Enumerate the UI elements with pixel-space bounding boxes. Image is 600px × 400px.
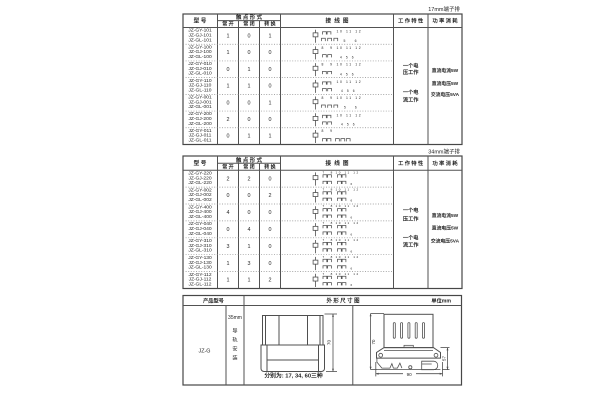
svg-text:1: 1 — [248, 67, 251, 73]
svg-text:JZ-GL-101: JZ-GL-101 — [188, 37, 212, 43]
svg-text:6: 6 — [351, 199, 354, 203]
svg-text:功 率 消 耗: 功 率 消 耗 — [432, 159, 458, 167]
svg-text:0: 0 — [248, 100, 251, 106]
svg-text:3: 3 — [248, 261, 251, 267]
svg-text:5 6: 5 6 — [344, 39, 359, 43]
svg-text:6: 6 — [351, 216, 354, 220]
svg-text:10 11 12: 10 11 12 — [337, 113, 363, 117]
svg-text:单位mm: 单位mm — [431, 297, 451, 305]
svg-text:4: 4 — [248, 227, 251, 233]
svg-text:1: 1 — [227, 33, 230, 39]
svg-text:一个电: 一个电 — [403, 206, 419, 214]
svg-text:JZ-GL-200: JZ-GL-200 — [188, 121, 212, 127]
svg-text:JZ-GL-011: JZ-GL-011 — [188, 138, 211, 144]
svg-text:35mm: 35mm — [228, 315, 242, 321]
svg-text:10 11 12: 10 11 12 — [337, 96, 363, 100]
svg-text:0: 0 — [269, 227, 272, 233]
svg-text:0: 0 — [269, 84, 272, 90]
svg-text:4 5 6: 4 5 6 — [341, 89, 356, 93]
svg-text:交流电压5VA: 交流电压5VA — [431, 91, 460, 98]
svg-text:0: 0 — [248, 117, 251, 123]
svg-text:直流电压5W: 直流电压5W — [432, 225, 459, 232]
svg-text:1: 1 — [227, 84, 230, 90]
svg-text:70: 70 — [371, 339, 376, 344]
svg-text:导: 导 — [232, 327, 237, 334]
svg-text:7 8: 7 8 — [323, 255, 334, 259]
svg-text:34mm端子排: 34mm端子排 — [428, 147, 460, 155]
svg-text:1: 1 — [248, 278, 251, 284]
svg-text:JZ-GL-002: JZ-GL-002 — [188, 197, 212, 203]
svg-text:17mm端子排: 17mm端子排 — [428, 5, 460, 13]
svg-text:流工作: 流工作 — [403, 96, 419, 104]
svg-text:JZ-GL-001: JZ-GL-001 — [188, 104, 212, 110]
svg-text:直流电流5W: 直流电流5W — [432, 67, 459, 74]
svg-text:工 作 特 性: 工 作 特 性 — [398, 159, 424, 167]
svg-text:57: 57 — [442, 356, 447, 361]
svg-text:4 5 6: 4 5 6 — [340, 56, 355, 60]
svg-text:0: 0 — [269, 244, 272, 250]
svg-text:6: 6 — [351, 266, 354, 270]
svg-text:10 11 12: 10 11 12 — [337, 30, 363, 34]
svg-text:70: 70 — [327, 340, 332, 346]
svg-text:6: 6 — [351, 233, 354, 237]
svg-text:0: 0 — [269, 261, 272, 267]
svg-text:4 5 6: 4 5 6 — [341, 122, 356, 126]
svg-text:压工作: 压工作 — [403, 215, 419, 223]
svg-text:直流电压5W: 直流电压5W — [432, 80, 459, 87]
svg-text:触 点 形 式: 触 点 形 式 — [236, 156, 263, 164]
svg-text:一个电: 一个电 — [403, 88, 419, 96]
svg-text:7 8: 7 8 — [323, 221, 334, 225]
svg-text:10 11 12: 10 11 12 — [337, 80, 363, 84]
svg-text:3: 3 — [227, 244, 230, 250]
svg-text:一个电: 一个电 — [403, 234, 419, 242]
svg-text:10 11 12: 10 11 12 — [336, 187, 360, 191]
svg-text:10 11 12: 10 11 12 — [336, 221, 360, 225]
svg-text:0: 0 — [248, 210, 251, 216]
svg-text:10 11 12: 10 11 12 — [336, 238, 360, 242]
svg-text:转 换: 转 换 — [264, 21, 276, 28]
svg-text:安: 安 — [232, 344, 237, 352]
svg-text:接 线 图: 接 线 图 — [326, 17, 349, 25]
svg-text:8 9: 8 9 — [322, 129, 334, 133]
svg-text:转 换: 转 换 — [264, 163, 276, 170]
svg-text:JZ-GL-040: JZ-GL-040 — [188, 231, 212, 237]
svg-text:0: 0 — [227, 227, 230, 233]
svg-text:2: 2 — [269, 278, 272, 284]
svg-text:常 开: 常 开 — [222, 163, 233, 170]
svg-text:0: 0 — [248, 193, 251, 199]
svg-text:功 率 消 耗: 功 率 消 耗 — [432, 17, 458, 25]
svg-text:6: 6 — [351, 283, 354, 287]
svg-text:10 11 12: 10 11 12 — [337, 46, 363, 50]
svg-text:5 6: 5 6 — [344, 106, 358, 110]
svg-text:直流电流5W: 直流电流5W — [432, 212, 459, 219]
svg-text:4 5 6: 4 5 6 — [340, 72, 355, 76]
svg-text:10 11 12: 10 11 12 — [336, 204, 360, 208]
svg-text:JZ-GL-110: JZ-GL-110 — [188, 87, 211, 93]
svg-text:流工作: 流工作 — [403, 240, 419, 248]
svg-text:10 11 12: 10 11 12 — [337, 63, 363, 67]
svg-text:0: 0 — [269, 67, 272, 73]
svg-text:0: 0 — [227, 134, 230, 140]
svg-text:2: 2 — [248, 176, 251, 182]
svg-text:10 11 12: 10 11 12 — [336, 255, 360, 259]
svg-text:JZ-GL-310: JZ-GL-310 — [188, 248, 212, 254]
svg-text:7 8: 7 8 — [323, 238, 334, 242]
svg-text:1: 1 — [248, 134, 251, 140]
svg-text:1: 1 — [227, 50, 230, 56]
svg-text:1: 1 — [269, 100, 272, 106]
svg-text:0: 0 — [269, 117, 272, 123]
svg-text:8 9: 8 9 — [322, 96, 334, 100]
svg-text:4: 4 — [227, 210, 230, 216]
svg-text:装: 装 — [232, 353, 237, 361]
svg-text:JZ-GL-130: JZ-GL-130 — [188, 265, 212, 271]
svg-text:JZ-GL-220: JZ-GL-220 — [188, 180, 212, 186]
svg-text:交流电压5VA: 交流电压5VA — [431, 237, 460, 244]
svg-text:1: 1 — [227, 278, 230, 284]
svg-text:6: 6 — [351, 182, 354, 186]
svg-text:0: 0 — [227, 193, 230, 199]
svg-text:0: 0 — [227, 100, 230, 106]
svg-text:接 线 图: 接 线 图 — [326, 159, 349, 167]
svg-text:0: 0 — [248, 33, 251, 39]
svg-text:JZ-GL-112: JZ-GL-112 — [188, 281, 211, 287]
svg-text:0: 0 — [269, 210, 272, 216]
svg-text:型 号: 型 号 — [194, 17, 207, 25]
svg-text:JZ-GL-400: JZ-GL-400 — [188, 214, 212, 220]
svg-text:0: 0 — [248, 50, 251, 56]
svg-text:型 号: 型 号 — [194, 159, 207, 167]
svg-text:7 8: 7 8 — [323, 187, 334, 191]
svg-text:1: 1 — [269, 33, 272, 39]
svg-text:工 作 特 性: 工 作 特 性 — [398, 17, 424, 25]
svg-text:0: 0 — [269, 176, 272, 182]
svg-text:触 点 形 式: 触 点 形 式 — [236, 13, 263, 21]
svg-text:2: 2 — [227, 117, 230, 123]
svg-text:0: 0 — [227, 67, 230, 73]
svg-text:2: 2 — [227, 176, 230, 182]
svg-text:1: 1 — [248, 84, 251, 90]
svg-text:常 闭: 常 闭 — [243, 163, 254, 170]
svg-text:1: 1 — [248, 244, 251, 250]
svg-text:8 9: 8 9 — [322, 63, 334, 67]
svg-text:7 8: 7 8 — [323, 170, 334, 174]
svg-text:7 8: 7 8 — [323, 272, 334, 276]
svg-text:JZ-GL-010: JZ-GL-010 — [188, 71, 212, 77]
svg-text:压工作: 压工作 — [403, 68, 419, 76]
svg-text:7 8: 7 8 — [323, 204, 334, 208]
svg-text:常 闭: 常 闭 — [243, 21, 254, 28]
svg-text:外 形 尺 寸 图: 外 形 尺 寸 图 — [327, 297, 361, 305]
svg-text:产品型号: 产品型号 — [203, 297, 224, 305]
svg-text:0: 0 — [269, 50, 272, 56]
svg-text:1: 1 — [227, 261, 230, 267]
svg-text:JZ-GL-100: JZ-GL-100 — [188, 54, 212, 60]
svg-text:10 11 12: 10 11 12 — [336, 170, 360, 174]
svg-text:轨: 轨 — [232, 335, 237, 343]
svg-text:JZ-G: JZ-G — [199, 348, 211, 354]
svg-text:8 9: 8 9 — [322, 46, 334, 50]
svg-text:90: 90 — [407, 372, 413, 377]
svg-text:1: 1 — [269, 134, 272, 140]
svg-text:2: 2 — [269, 193, 272, 199]
svg-text:常 开: 常 开 — [222, 21, 233, 28]
svg-text:一个电: 一个电 — [403, 61, 419, 69]
svg-text:10 11 12: 10 11 12 — [336, 272, 360, 276]
svg-text:6: 6 — [351, 249, 354, 253]
svg-text:分别为: 17, 34, 60三种: 分别为: 17, 34, 60三种 — [264, 371, 323, 379]
